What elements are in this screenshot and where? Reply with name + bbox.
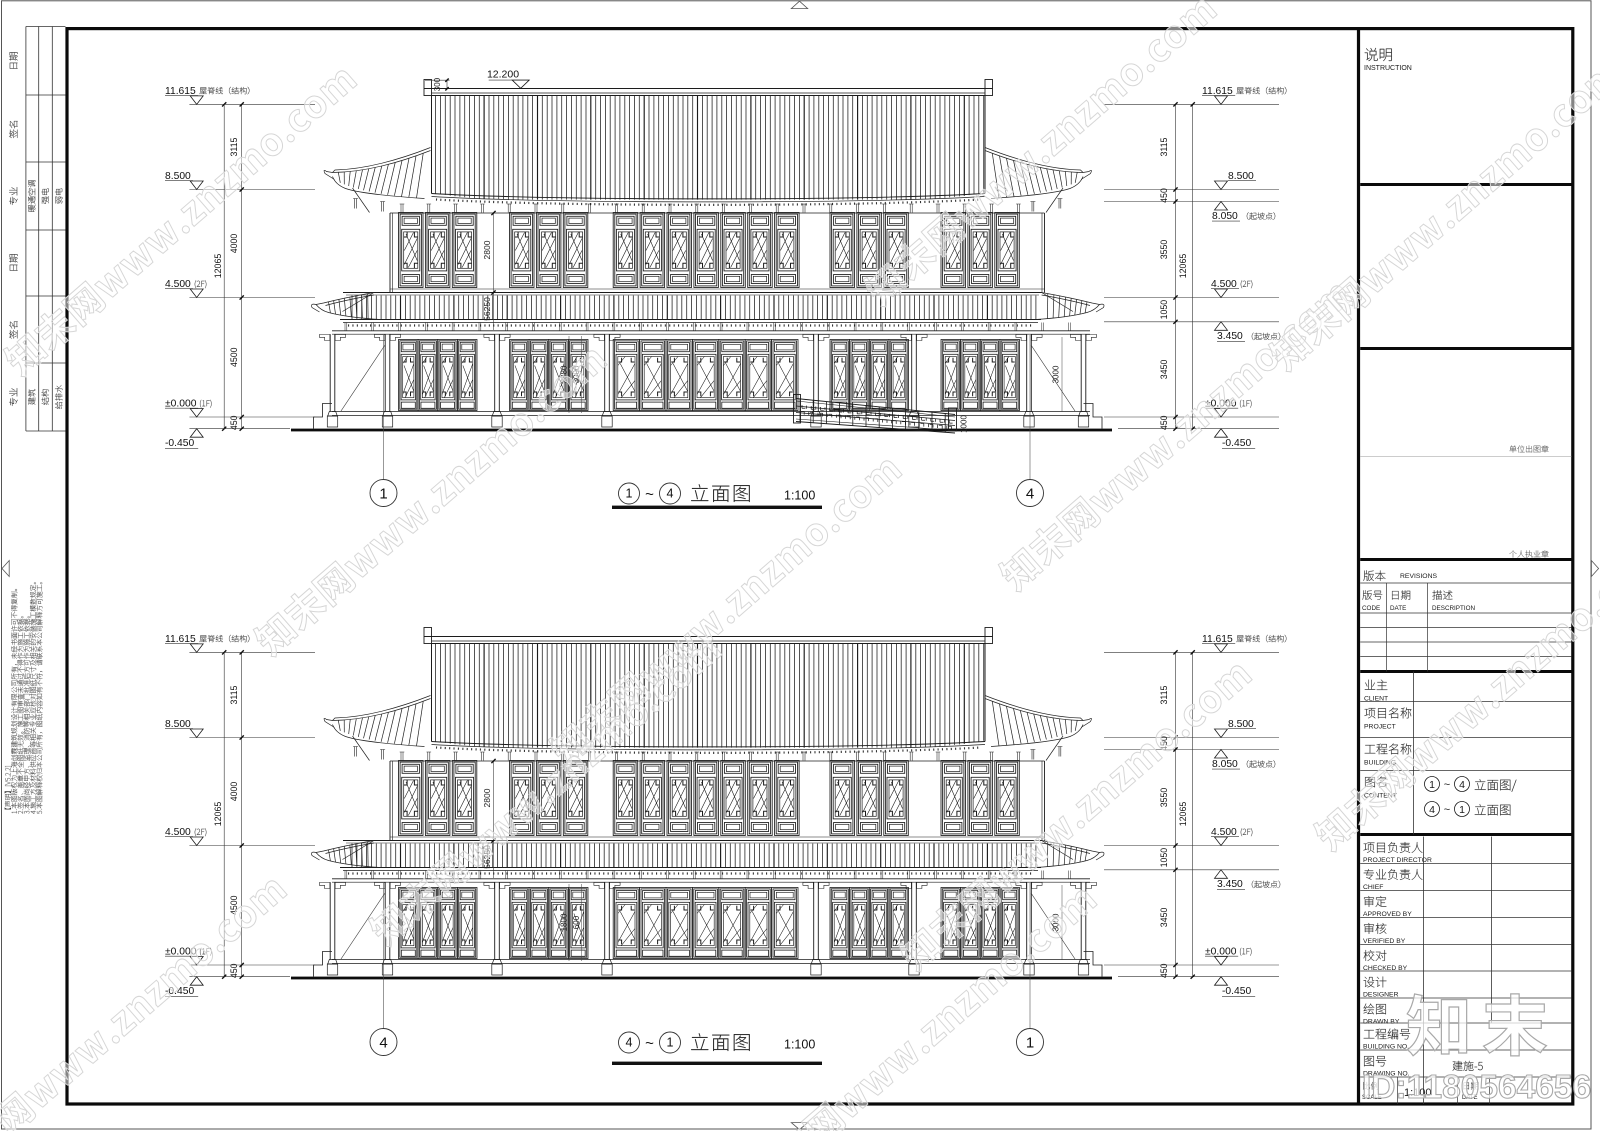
svg-text:8.500: 8.500 [165,171,191,182]
svg-text:1800: 1800 [560,913,569,931]
svg-text:-0.450: -0.450 [1222,438,1251,449]
svg-text:8.500: 8.500 [1228,171,1254,182]
svg-text:450: 450 [229,963,239,978]
svg-text:8.500: 8.500 [165,719,191,730]
svg-text:450: 450 [1159,188,1169,203]
svg-text:3550: 3550 [1159,788,1169,808]
svg-text:1: 1 [626,487,633,501]
svg-text:3115: 3115 [229,137,239,156]
svg-text:1050: 1050 [1159,300,1169,320]
svg-text:1: 1 [379,485,387,502]
svg-text:1: 1 [1026,1034,1034,1051]
svg-text:~: ~ [1444,779,1450,791]
svg-text:3000: 3000 [1052,365,1061,383]
svg-text:3.450: 3.450 [1217,879,1243,890]
svg-text:3450: 3450 [1159,360,1169,380]
svg-text:±0.000: ±0.000 [165,398,197,409]
svg-text:VERIFIED BY: VERIFIED BY [1363,938,1406,945]
svg-text:11.615: 11.615 [165,86,196,97]
svg-text:1: 1 [1459,804,1465,816]
svg-text:~: ~ [645,1035,654,1052]
svg-text:1050: 1050 [1159,848,1169,868]
svg-text:4: 4 [626,1036,633,1050]
svg-text:CHIEF: CHIEF [1363,884,1383,891]
svg-text:300: 300 [433,77,442,91]
svg-text:3550: 3550 [1159,240,1169,260]
svg-text:3.450: 3.450 [1217,331,1243,342]
svg-text:DESCRIPTION: DESCRIPTION [1432,605,1475,612]
svg-text:4: 4 [667,487,674,501]
svg-text:INSTRUCTION: INSTRUCTION [1364,65,1412,72]
svg-text:DATE: DATE [1390,605,1406,612]
svg-text:450: 450 [1159,963,1169,978]
svg-text:3115: 3115 [229,685,239,704]
svg-text:4500: 4500 [229,347,239,367]
svg-text:DRAWN BY: DRAWN BY [1363,1019,1400,1026]
svg-text:1: 1 [667,1036,674,1050]
svg-text:±0.000: ±0.000 [1205,946,1237,957]
svg-text:12065: 12065 [213,802,223,827]
svg-text:~: ~ [645,486,654,503]
svg-text:3450: 3450 [1159,908,1169,928]
svg-text:600: 600 [572,915,581,929]
svg-text:8.050: 8.050 [1212,759,1238,770]
svg-text:~: ~ [1444,804,1450,816]
svg-text:8.500: 8.500 [1228,719,1254,730]
svg-text:4.500: 4.500 [1211,827,1237,838]
svg-text:4000: 4000 [229,782,239,802]
svg-text:4: 4 [1459,779,1465,791]
svg-text:REVISIONS: REVISIONS [1400,573,1437,580]
svg-text:3115: 3115 [1159,685,1169,704]
svg-text:-0.450: -0.450 [1222,986,1251,997]
svg-text:4.500: 4.500 [165,279,191,290]
svg-text:450: 450 [1159,415,1169,430]
svg-text:1:100: 1:100 [784,489,815,503]
svg-text:1000: 1000 [960,415,969,433]
svg-text:4: 4 [1429,804,1435,816]
svg-text:APPROVED BY: APPROVED BY [1363,911,1412,918]
svg-text:12.200: 12.200 [487,69,519,81]
svg-text:11.615: 11.615 [1202,86,1233,97]
svg-text:-0.450: -0.450 [165,438,194,449]
svg-text:4.500: 4.500 [165,827,191,838]
svg-text:12065: 12065 [213,254,223,279]
svg-text:12065: 12065 [1178,254,1188,279]
svg-text:4000: 4000 [229,234,239,254]
svg-text:8.050: 8.050 [1212,211,1238,222]
svg-text:1:100: 1:100 [784,1038,815,1052]
svg-text:12065: 12065 [1178,802,1188,827]
svg-text:DESIGNER: DESIGNER [1363,992,1399,999]
svg-text:450: 450 [229,415,239,430]
svg-text:4: 4 [379,1034,387,1051]
svg-text:PROJECT DIRECTOR: PROJECT DIRECTOR [1363,857,1432,864]
svg-text:3115: 3115 [1159,137,1169,156]
svg-text:PROJECT: PROJECT [1364,724,1396,731]
svg-text:BUILDING NO.: BUILDING NO. [1363,1044,1409,1051]
svg-text:1: 1 [1429,779,1435,791]
svg-text:CODE: CODE [1362,605,1380,612]
svg-text:4.500: 4.500 [1211,279,1237,290]
svg-text:4: 4 [1026,485,1034,502]
svg-text:11.615: 11.615 [165,634,196,645]
svg-text:11.615: 11.615 [1202,634,1233,645]
svg-text:ID:1180564656: ID:1180564656 [1362,1069,1591,1106]
